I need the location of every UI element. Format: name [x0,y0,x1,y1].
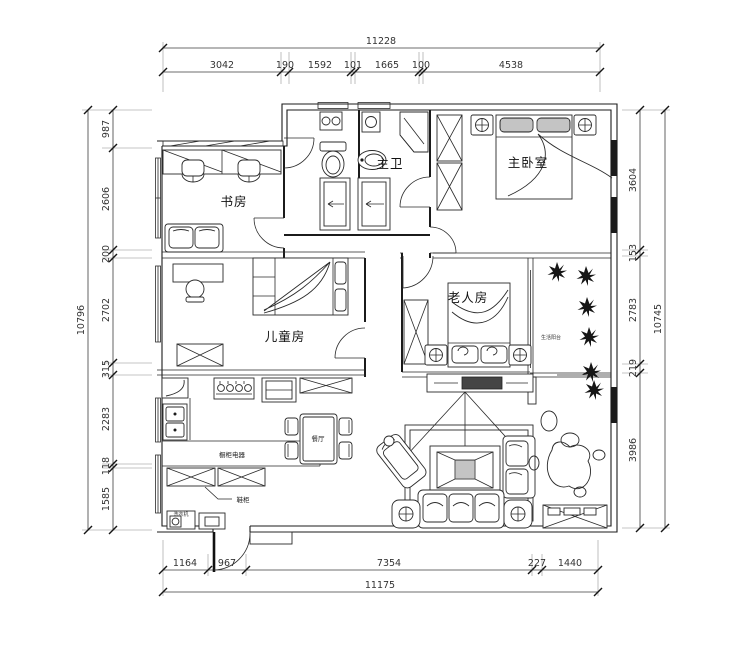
entry-zone: 鞋柜 洗衣机 [167,468,265,529]
desk-chair-icon [238,160,260,182]
dim-right-seg: 219 [628,359,639,377]
stone-decor-icon [529,411,605,497]
fridge-icon [262,378,296,402]
dim-top-seg: 190 [276,60,294,71]
shoe-cabinet-icon [167,468,265,486]
stove-icon [214,378,254,399]
door-kids-room [335,328,365,358]
room-label-kids: 儿童房 [265,329,306,344]
dim-right-seg: 3986 [628,438,639,462]
nightstand-icon [509,345,531,365]
balcony: 生活阳台 [541,262,604,400]
dimensions-right: 10745 3604 153 2783 219 3986 [622,106,670,532]
wardrobe-icon [437,115,462,210]
cabinet-icon [320,112,342,130]
dim-left-seg: 2606 [101,187,112,211]
window-master-right-2 [611,197,617,233]
label-laundry: 洗衣机 [173,511,188,518]
corner-shower-icon [400,112,428,152]
plant-icon [577,266,597,286]
window-kitchen-left [156,398,161,442]
door-master-bath [400,177,430,207]
plant-icon [582,362,602,382]
door-study [254,218,284,248]
desk-chair-icon [182,160,204,182]
entry-step [250,532,292,544]
nightstand-icon [471,115,493,135]
dim-left-seg: 2283 [101,407,112,431]
living-room [374,374,607,528]
sofa-three-seat-icon [418,490,504,528]
dim-top-seg: 1592 [308,60,332,71]
plant-icon [580,327,600,347]
dimensions-left: 10796 987 2606 200 2702 315 2283 118 158… [76,106,152,534]
floor-plan-svg: 11228 3042 190 1592 101 1665 100 4538 10… [0,0,750,649]
window-laundry-left [156,455,161,513]
room-label-elder: 老人房 [448,290,489,305]
dim-right-seg: 2783 [628,298,639,322]
dim-left-total: 10796 [76,305,87,335]
dining-chair-icon [285,418,298,435]
cabinet-icon [177,344,223,366]
door-bath [284,138,314,168]
dim-top-total: 11228 [366,36,396,47]
dim-top-seg: 4538 [499,60,523,71]
dim-bottom-seg: 227 [528,558,546,569]
wardrobe-icon [404,300,428,364]
nightstand-icon [574,115,596,135]
label-shoe-cabinet: 鞋柜 [237,495,251,504]
room-master-bedroom: 主卧室 [437,115,612,210]
coffee-table-icon [430,446,500,494]
door-elder-room [403,256,433,288]
dim-left-seg: 315 [101,360,112,378]
room-elder: 老人房 [404,283,531,367]
window-study-left [156,158,161,238]
dim-left-seg: 118 [101,457,112,475]
dimensions-top: 11228 3042 190 1592 101 1665 100 4538 [159,36,604,92]
room-label-dining: 餐厅 [312,434,326,443]
label-kitchen-counter: 橱柜电器 [219,450,246,459]
dim-left-seg: 2702 [101,298,112,322]
room-label-balcony: 生活阳台 [541,334,561,341]
dim-top-seg: 3042 [210,60,234,71]
dim-left-seg: 200 [101,245,112,263]
window-kids-left [156,266,161,342]
window-study-top [163,141,283,146]
window-master-right-1 [611,140,617,176]
room-label-master-bath: 主卫 [376,156,403,171]
dim-top-seg: 101 [344,60,362,71]
tv-cabinet-icon [427,374,533,392]
dim-bottom-seg: 1164 [173,558,197,569]
washer-icon [362,112,380,132]
desk-icon [163,150,281,174]
plant-icon [548,262,568,282]
window-bath-top [318,103,390,109]
dining-chair-icon [285,442,298,459]
lamp-table-icon [504,500,532,528]
dining: 餐厅 [285,414,352,464]
nightstand-icon [425,345,447,365]
plant-icon [578,297,598,317]
door-master-bedroom [430,227,456,253]
corner-shelf-icon [162,378,188,398]
dim-right-seg: 3604 [628,168,639,192]
dim-right-seg: 153 [628,244,639,262]
counter-box-icon [199,513,225,529]
dim-top-seg: 100 [412,60,430,71]
room-label-study: 书房 [220,194,247,209]
dim-bottom-total: 11175 [365,580,395,591]
hall-cabinet-icon [300,378,352,393]
dining-chair-icon [339,418,352,435]
lamp-table-icon [392,500,420,528]
dim-left-seg: 987 [101,120,112,138]
room-bathrooms: 主卫 [320,112,428,230]
shower-stall-icon [358,178,390,230]
dim-bottom-seg: 7354 [377,558,401,569]
room-study: 书房 [163,150,281,252]
floor-plan-page: 11228 3042 190 1592 101 1665 100 4538 10… [0,0,750,649]
window-living-right [611,387,617,423]
plant-icon [585,380,605,400]
shower-stall-icon [320,178,350,230]
side-round-table-icon [384,436,394,446]
dim-top-seg: 1665 [375,60,399,71]
kids-bed-icon [253,258,348,315]
dining-chair-icon [339,442,352,459]
sink-icon [163,404,187,440]
room-label-master-bedroom: 主卧室 [508,155,549,170]
toilet-icon [320,142,346,177]
dim-left-seg: 1585 [101,487,112,511]
dim-right-total: 10745 [653,304,664,334]
dim-bottom-seg: 1440 [558,558,582,569]
sofa-icon [165,224,223,252]
media-cabinet-icon [543,505,607,528]
kids-desk-icon [173,264,223,302]
room-kids: 儿童房 [173,258,348,366]
